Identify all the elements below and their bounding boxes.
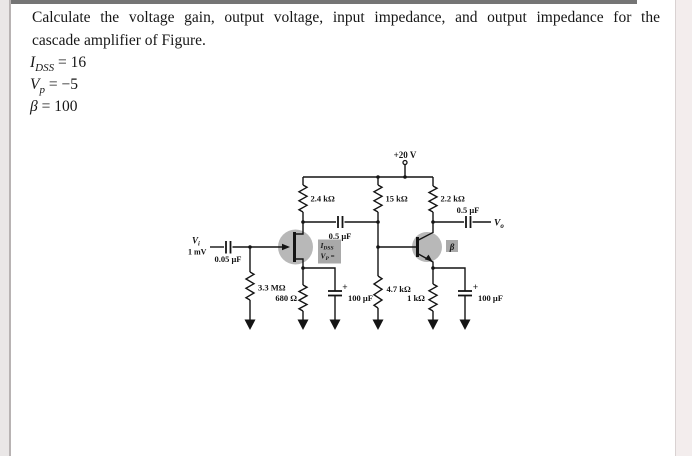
resistor-source-label: 680 Ω bbox=[275, 293, 297, 303]
resistor-base-upper-label: 15 kΩ bbox=[386, 194, 408, 204]
emitter-cap-plus-label: + bbox=[473, 283, 478, 293]
capacitor-emitter-label: 100 μF bbox=[478, 293, 503, 303]
input-voltage-label: Vi bbox=[192, 236, 200, 248]
capacitor-emitter-bypass bbox=[458, 291, 472, 296]
resistor-drain bbox=[299, 185, 307, 212]
resistor-collector-label: 2.2 kΩ bbox=[441, 194, 465, 204]
given-idss-subscript: DSS bbox=[35, 62, 54, 74]
capacitor-source-label: 100 μF bbox=[348, 293, 373, 303]
problem-statement-line1: Calculate the voltage gain, output volta… bbox=[32, 7, 660, 30]
capacitor-interstage bbox=[338, 216, 343, 228]
capacitor-input bbox=[226, 241, 231, 254]
given-beta-value: = 100 bbox=[38, 98, 78, 115]
supply-terminal-icon bbox=[403, 161, 407, 165]
resistor-base-lower bbox=[374, 276, 382, 308]
given-vp-value: = −5 bbox=[45, 76, 78, 93]
junction-dots bbox=[248, 175, 435, 270]
given-idss: IDSS = 16 bbox=[30, 52, 692, 74]
resistor-gate-label: 3.3 MΩ bbox=[258, 283, 286, 293]
output-voltage-label: Vo bbox=[494, 219, 504, 231]
given-beta-symbol: β bbox=[30, 98, 38, 115]
capacitor-interstage-label: 0.5 μF bbox=[329, 231, 352, 241]
resistor-base-upper bbox=[374, 185, 382, 212]
cascade-amplifier-circuit-diagram: +20 V 2.4 kΩ 15 kΩ 2.2 kΩ 0.5 μF 0.5 μF … bbox=[180, 143, 530, 343]
problem-statement-line2: cascade amplifier of Figure. bbox=[32, 30, 660, 53]
given-idss-value: = 16 bbox=[54, 54, 86, 71]
source-cap-plus-label: + bbox=[342, 283, 347, 293]
bjt-beta-label: β bbox=[449, 242, 455, 252]
capacitor-output bbox=[466, 216, 471, 228]
input-level-label: 1 mV bbox=[188, 248, 207, 257]
capacitor-input-label: 0.05 μF bbox=[214, 254, 241, 264]
resistor-emitter bbox=[429, 284, 437, 311]
ground-icons bbox=[245, 320, 471, 331]
supply-label: +20 V bbox=[394, 150, 417, 160]
resistor-source bbox=[299, 285, 307, 311]
given-vp: Vp = −5 bbox=[30, 74, 692, 96]
given-beta: β = 100 bbox=[30, 96, 692, 118]
resistor-gate bbox=[246, 272, 254, 300]
resistor-drain-label: 2.4 kΩ bbox=[311, 194, 335, 204]
capacitor-output-label: 0.5 μF bbox=[457, 205, 480, 215]
problem-content: Calculate the voltage gain, output volta… bbox=[0, 0, 692, 118]
resistor-emitter-label: 1 kΩ bbox=[407, 293, 425, 303]
capacitor-source-bypass bbox=[328, 291, 342, 296]
resistor-collector bbox=[429, 186, 437, 212]
